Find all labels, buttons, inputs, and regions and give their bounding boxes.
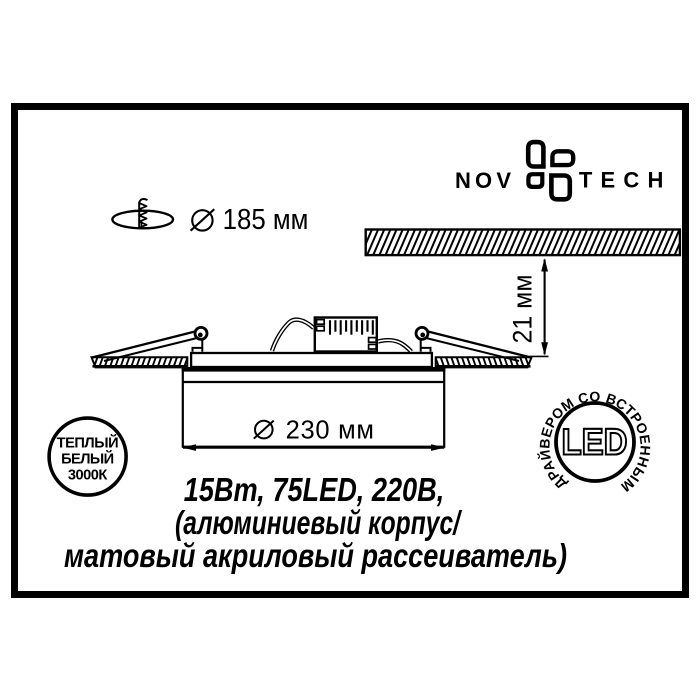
svg-text:230 мм: 230 мм xyxy=(286,417,374,445)
svg-text:15Вт, 75LED, 220В,: 15Вт, 75LED, 220В, xyxy=(184,471,445,508)
svg-text:ТЕПЛЫЙ: ТЕПЛЫЙ xyxy=(57,433,119,451)
svg-text:21 мм: 21 мм xyxy=(508,275,538,344)
svg-text:LED: LED xyxy=(562,422,628,463)
svg-text:185 мм: 185 мм xyxy=(223,204,309,236)
svg-text:(алюминиевый корпус/: (алюминиевый корпус/ xyxy=(175,504,463,541)
svg-text:матовый акриловый рассеиватель: матовый акриловый рассеиватель) xyxy=(64,537,567,574)
svg-text:3000К: 3000К xyxy=(68,468,108,484)
svg-text:БЕЛЫЙ: БЕЛЫЙ xyxy=(61,450,114,468)
svg-text:NOV: NOV xyxy=(455,168,511,193)
